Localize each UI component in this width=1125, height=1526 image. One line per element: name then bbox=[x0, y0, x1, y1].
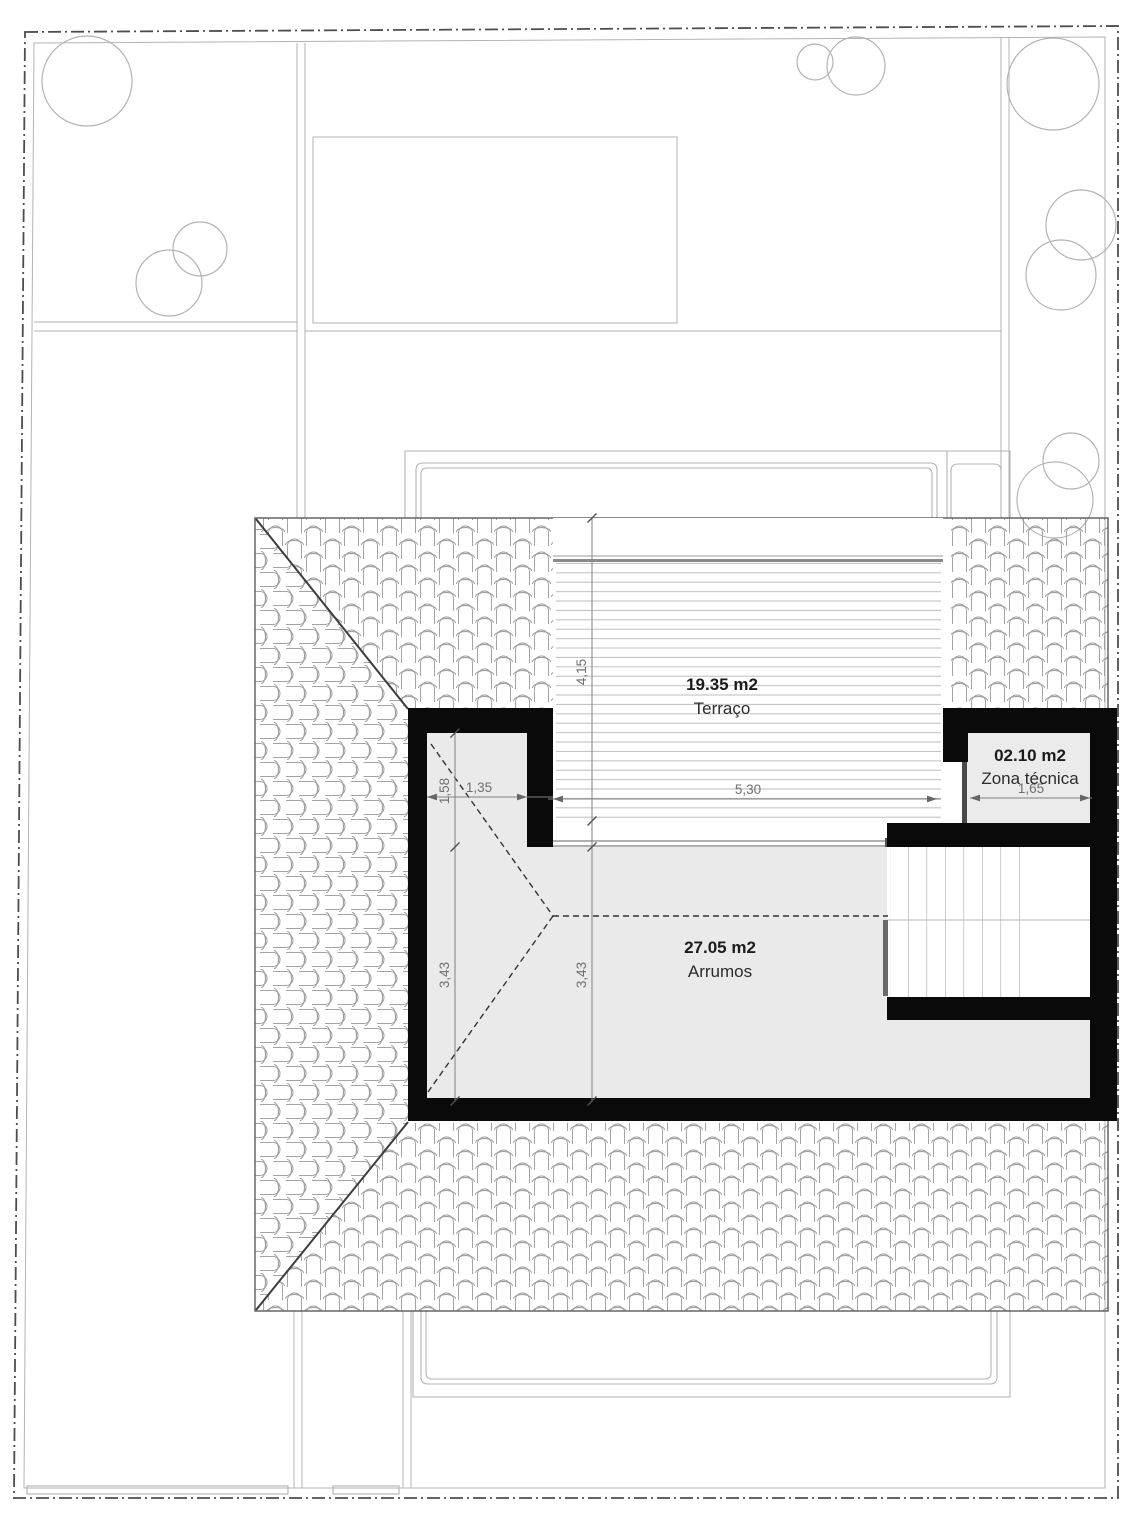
tree-canopy bbox=[1043, 433, 1099, 489]
terraco-name-label: Terraço bbox=[694, 699, 751, 718]
dim-terrace-width: 5,30 bbox=[735, 782, 761, 797]
terraco-area-label: 19.35 m2 bbox=[686, 675, 758, 694]
balcony-outline bbox=[405, 451, 1010, 518]
tree-canopy bbox=[136, 250, 202, 316]
wall bbox=[408, 708, 427, 1121]
zona-tecnica-area-label: 02.10 m2 bbox=[994, 746, 1066, 765]
dim-nook-depth: 1,58 bbox=[437, 778, 452, 804]
dim-terrace-depth: 4,15 bbox=[574, 659, 589, 685]
lower-floor-outline-bottom bbox=[413, 1311, 1010, 1397]
railing-outline bbox=[416, 463, 937, 518]
zona-tecnica-name-label: Zona técnica bbox=[981, 769, 1079, 788]
arrumos-area-label: 27.05 m2 bbox=[684, 938, 756, 957]
wall bbox=[408, 708, 553, 733]
door-leaf bbox=[962, 762, 967, 823]
dim-nook-width: 1,35 bbox=[466, 780, 492, 795]
railing-outline bbox=[421, 468, 932, 518]
zona-tecnica-door-opening bbox=[945, 762, 962, 823]
tree-canopy bbox=[42, 36, 132, 126]
wall bbox=[408, 1098, 1117, 1121]
wall bbox=[887, 823, 1117, 847]
tree-canopy bbox=[827, 37, 885, 95]
railing-outline bbox=[421, 1311, 997, 1384]
roof-hatch-right bbox=[951, 518, 1108, 708]
railing-outline bbox=[426, 1311, 991, 1379]
floor-plan-drawing: 4,15 5,30 1,35 1,58 1,65 3,43 3,43 19.35… bbox=[0, 0, 1125, 1526]
fence-wall bbox=[333, 1486, 399, 1494]
arrumos-name-label: Arrumos bbox=[688, 962, 752, 981]
dim-arrumos-depth-left: 3,43 bbox=[437, 962, 452, 988]
tree-canopy bbox=[1007, 38, 1099, 130]
lower-floor-outline-top bbox=[405, 451, 1010, 518]
floor-plan-page: 4,15 5,30 1,35 1,58 1,65 3,43 3,43 19.35… bbox=[0, 0, 1125, 1526]
wall bbox=[527, 733, 553, 847]
wall bbox=[887, 997, 1090, 1020]
dim-arrumos-depth-mid: 3,43 bbox=[574, 962, 589, 988]
wall bbox=[1090, 708, 1117, 1121]
stair-treads bbox=[890, 847, 1032, 997]
tree-canopy bbox=[173, 222, 227, 276]
railing-outline bbox=[951, 464, 1001, 518]
wall bbox=[943, 733, 968, 762]
fence-wall bbox=[27, 1486, 288, 1494]
tree-canopy bbox=[1026, 240, 1096, 310]
stair-handrail bbox=[883, 920, 888, 996]
pool-outline bbox=[313, 137, 677, 323]
